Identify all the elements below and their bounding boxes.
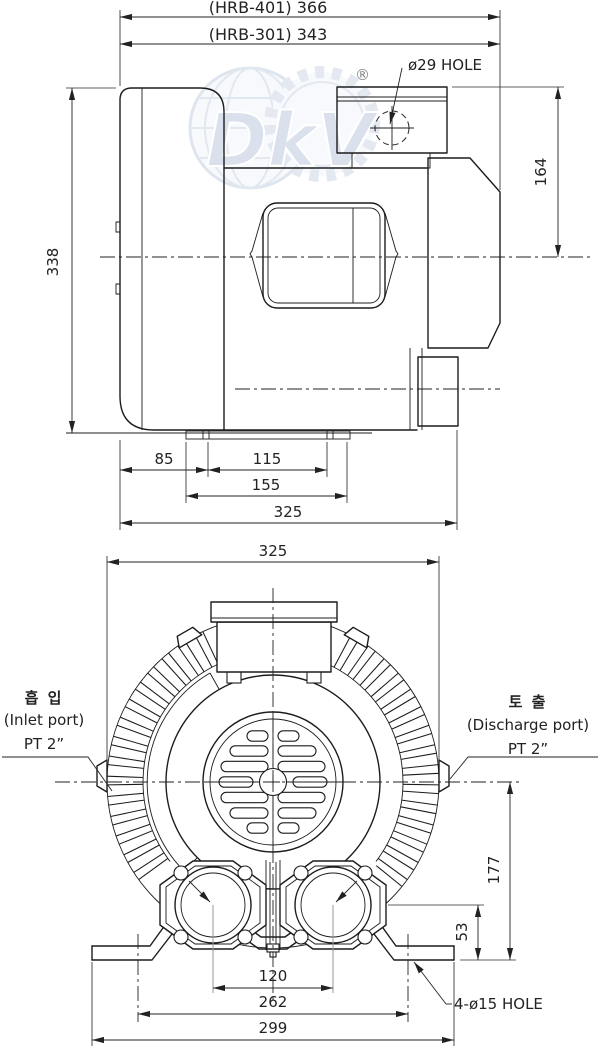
dim-width: 325 <box>259 542 288 560</box>
foot-hole-label: 4-ø15 HOLE <box>454 995 543 1013</box>
front-view <box>55 588 522 1022</box>
discharge-english-label: (Discharge port) <box>467 716 589 734</box>
technical-drawing-page: DkV ® <box>0 0 600 1049</box>
dim-overall-hrb301: (HRB-301) 343 <box>209 25 328 44</box>
inlet-port-label: 흡 입 (Inlet port) PT 2” <box>2 689 112 791</box>
terminal-box-front <box>211 602 337 683</box>
left-chevron <box>250 213 263 297</box>
left-mount-tab <box>97 760 107 792</box>
dim-base-inner: 115 <box>253 450 282 468</box>
discharge-size-label: PT 2” <box>508 740 548 758</box>
upper-left-tab <box>174 625 202 648</box>
dim-port-spacing: 120 <box>259 967 288 985</box>
motor-end-cap <box>428 158 500 348</box>
dim-total-height: 338 <box>44 248 62 277</box>
inlet-english-label: (Inlet port) <box>4 711 84 729</box>
discharge-leader <box>450 757 598 779</box>
dim-base-flange: 155 <box>252 476 281 494</box>
base-flange <box>186 431 350 439</box>
dkv-watermark-logo: DkV ® <box>190 66 380 188</box>
dim-overall-hrb401: (HRB-401) 366 <box>209 0 328 17</box>
dim-center-height: 177 <box>485 856 503 885</box>
upper-right-tab <box>344 625 372 648</box>
dim-base-width: 299 <box>259 1019 288 1037</box>
right-chevron <box>385 213 398 297</box>
inlet-leader <box>2 757 112 791</box>
inlet-size-label: PT 2” <box>24 735 64 753</box>
base-flange-ticks <box>203 431 333 439</box>
dim-port-height: 53 <box>453 922 471 941</box>
inlet-korean-label: 흡 입 <box>25 689 64 707</box>
hole-label: ø29 HOLE <box>408 56 482 74</box>
hole-leader <box>390 68 402 124</box>
dim-terminal-height: 164 <box>532 158 550 187</box>
foot-hole-leader <box>414 962 446 1004</box>
dim-base-offset: 85 <box>154 450 173 468</box>
watermark-text: DkV <box>206 98 380 184</box>
discharge-port-side <box>418 357 458 426</box>
discharge-port-label: 토 출 (Discharge port) PT 2” <box>450 693 598 779</box>
registered-trademark-icon: ® <box>355 66 370 84</box>
right-mount-tab <box>439 760 449 792</box>
dim-depth: 325 <box>274 503 303 521</box>
silencer-box-outer <box>263 203 385 308</box>
discharge-korean-label: 토 출 <box>509 693 548 711</box>
silencer-box-inner <box>268 208 380 303</box>
blower-dimension-drawing: DkV ® <box>0 0 600 1049</box>
dim-foot-hole-spacing: 262 <box>259 993 288 1011</box>
